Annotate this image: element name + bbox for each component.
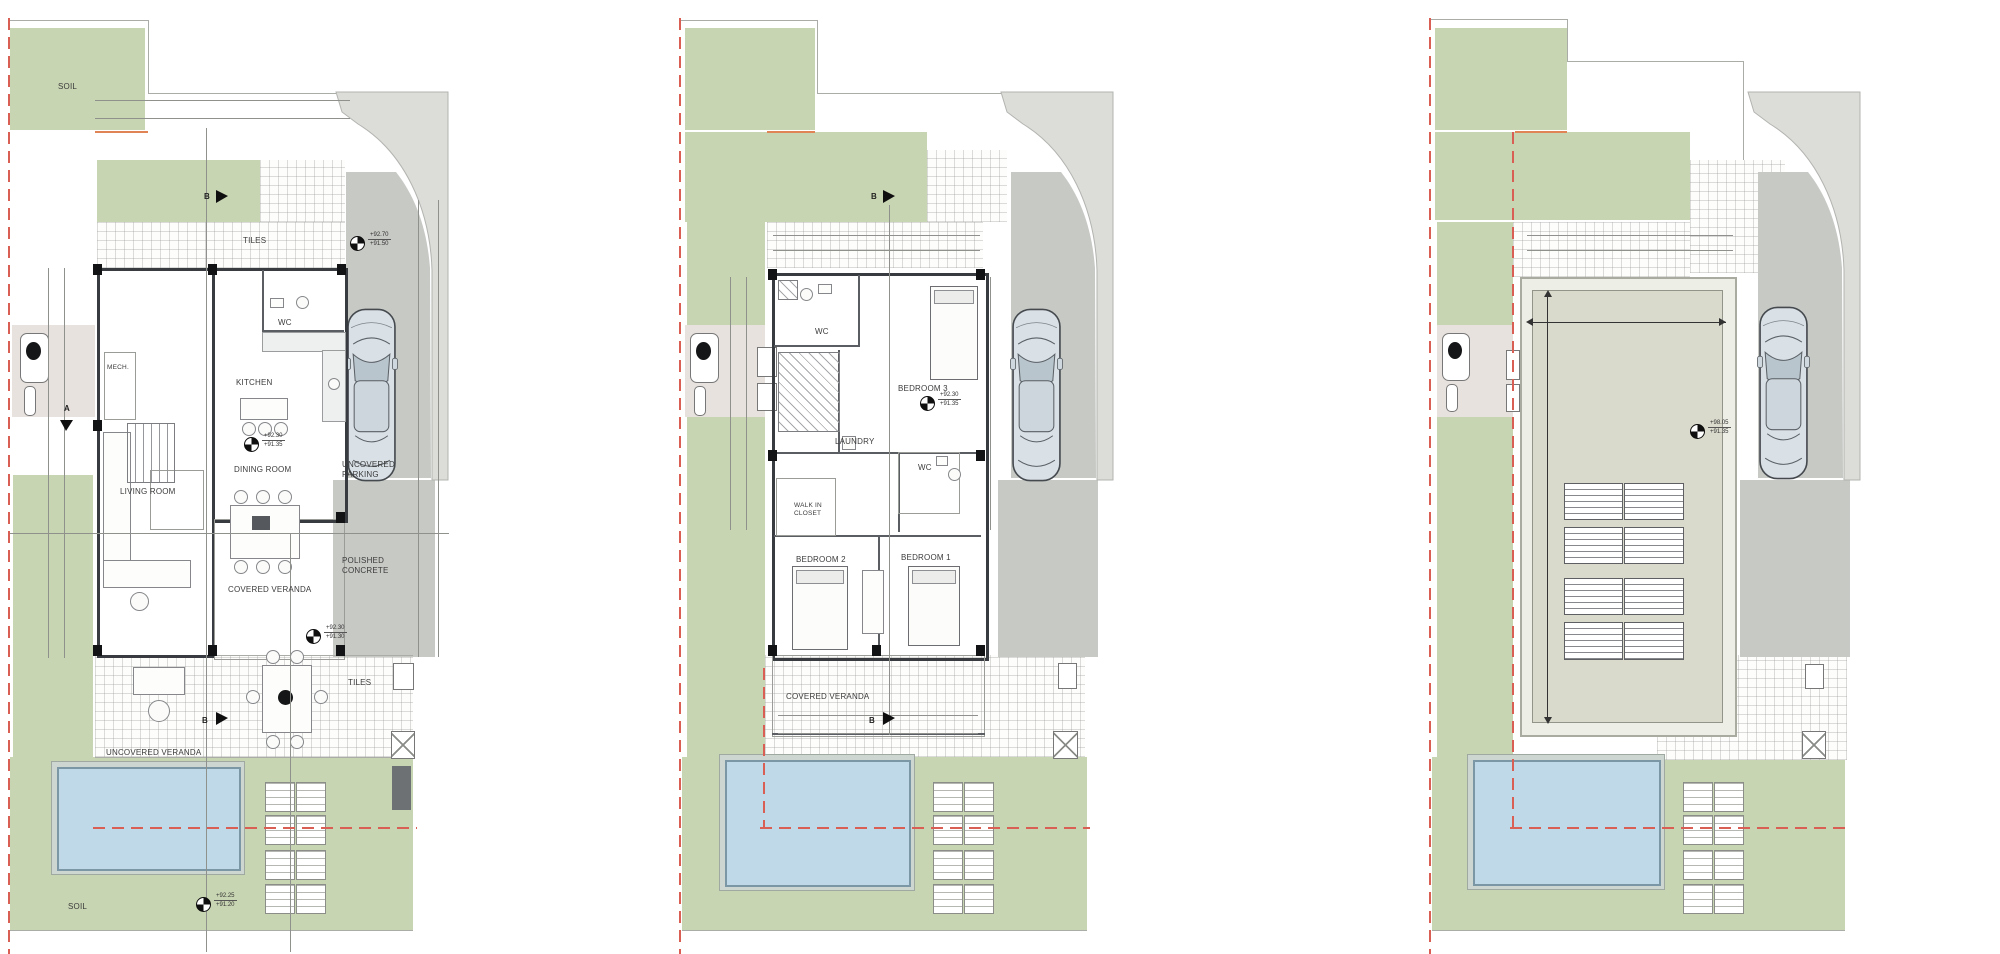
shaft-icon <box>391 731 415 759</box>
column <box>768 269 777 280</box>
plot-outline <box>148 93 352 94</box>
plot-outline <box>148 20 149 93</box>
dim-line <box>48 268 49 658</box>
dim-line <box>730 277 731 530</box>
solar-panel <box>1624 622 1684 660</box>
utility-box-icon <box>1805 664 1824 689</box>
section-line <box>889 205 890 735</box>
label-tiles-upper: TILES <box>243 236 266 246</box>
chair <box>256 490 270 504</box>
setback-dashed <box>93 827 417 829</box>
chair <box>314 690 328 704</box>
section-arrow-icon <box>60 420 73 431</box>
mech-unit-fan-icon <box>26 342 41 360</box>
paved-area <box>998 480 1098 657</box>
solar-panel <box>1624 527 1684 564</box>
plot-outline <box>682 930 1087 931</box>
setback-dashed-vertical <box>763 668 765 827</box>
table-centerpiece <box>252 516 270 530</box>
level-value: +91.35 <box>1708 428 1731 435</box>
level-value: +98.05 <box>1708 420 1731 428</box>
garden-area <box>97 160 260 222</box>
wc-outline <box>898 452 960 514</box>
column <box>93 645 102 656</box>
dim-line <box>773 250 980 251</box>
label-laundry: LAUNDRY <box>835 437 875 447</box>
garden-area <box>1435 28 1567 130</box>
kitchen-counter <box>262 332 346 352</box>
column <box>93 264 102 275</box>
staircase <box>127 423 175 483</box>
shower-icon <box>778 280 798 300</box>
setback-dashed <box>760 827 1090 829</box>
mech-unit-fan-icon <box>696 342 711 360</box>
level-marker: +92.70+91.50 <box>350 232 391 251</box>
column <box>768 450 777 461</box>
chair <box>290 650 304 664</box>
mech-pill-icon <box>1446 384 1458 412</box>
armchair <box>130 592 149 611</box>
pillow <box>934 290 974 304</box>
level-value: +92.30 <box>262 433 285 441</box>
outdoor-sofa <box>133 667 185 695</box>
dim-arrowhead <box>1544 290 1552 297</box>
toilet-icon <box>296 296 309 309</box>
dim-line <box>773 235 980 236</box>
chair <box>266 650 280 664</box>
level-marker: +92.30+91.30 <box>306 625 347 644</box>
solar-panel <box>1564 622 1623 660</box>
dim-line <box>438 200 439 657</box>
utility-box-icon <box>1058 663 1077 689</box>
sun-lounger <box>1714 884 1744 914</box>
level-marker-icon <box>306 629 321 644</box>
label-soil-top: SOIL <box>58 82 77 92</box>
plot-outline <box>1432 930 1845 931</box>
sun-lounger <box>1683 815 1713 845</box>
section-arrow-icon <box>883 190 895 203</box>
garden-area <box>685 28 815 130</box>
label-bedroom1: BEDROOM 1 <box>901 553 951 563</box>
plot-outline <box>10 930 413 931</box>
sofa <box>103 560 191 588</box>
chair <box>234 560 248 574</box>
washbasin-icon <box>936 456 948 466</box>
dim-line <box>746 277 747 530</box>
utility-block <box>392 766 411 810</box>
mech-closet <box>104 352 136 420</box>
pillow <box>912 570 956 584</box>
garden-area <box>13 475 93 757</box>
sun-lounger <box>1683 884 1713 914</box>
tiled-area <box>927 150 1007 222</box>
label-living-room: LIVING ROOM <box>120 487 176 497</box>
level-value: +91.30 <box>324 633 347 640</box>
solar-panel <box>1564 527 1623 564</box>
plot-outline <box>680 20 817 21</box>
chair <box>278 490 292 504</box>
column <box>976 269 985 280</box>
shaft-icon <box>1802 731 1826 759</box>
sun-lounger <box>1714 815 1744 845</box>
sun-lounger <box>1683 782 1713 812</box>
sun-lounger <box>296 884 326 914</box>
sun-lounger <box>1714 782 1744 812</box>
column <box>976 450 985 461</box>
sun-lounger <box>1683 850 1713 880</box>
plot-outline <box>1743 61 1744 160</box>
level-value: +92.25 <box>214 893 237 901</box>
kitchen-island <box>240 398 288 420</box>
level-marker: +92.30+91.35 <box>920 392 961 411</box>
sun-lounger <box>296 815 326 845</box>
level-marker: +92.25+91.20 <box>196 893 237 912</box>
dim-line <box>778 733 978 734</box>
washbasin-icon <box>818 284 832 294</box>
column <box>768 645 777 656</box>
sun-lounger <box>1714 850 1744 880</box>
label-wc-mid: WC <box>918 463 932 473</box>
section-label-b: B <box>204 192 210 201</box>
washbasin-icon <box>270 298 284 308</box>
label-dining-room: DINING ROOM <box>234 465 291 475</box>
solar-panel <box>1624 578 1684 615</box>
dim-line <box>1527 250 1733 251</box>
dim-line <box>1527 235 1733 236</box>
chair <box>234 490 248 504</box>
label-covered-veranda: COVERED VERANDA <box>228 585 311 595</box>
chair <box>256 560 270 574</box>
label-soil-bottom: SOIL <box>68 902 87 912</box>
grid-line <box>9 533 449 534</box>
garden-area <box>687 222 765 757</box>
label-wc: WC <box>278 318 292 328</box>
level-value: +91.35 <box>938 400 961 407</box>
plot-outline <box>817 20 818 93</box>
level-marker-icon <box>350 236 365 251</box>
setback-dashed-vertical <box>1512 132 1514 827</box>
sun-lounger <box>964 884 994 914</box>
partition-wall <box>858 275 860 347</box>
sun-lounger <box>964 850 994 880</box>
desk <box>862 570 884 634</box>
plot-boundary-dashed <box>1429 18 1431 954</box>
sun-lounger <box>296 782 326 812</box>
plot-outline <box>1567 61 1743 62</box>
tiled-area <box>260 160 345 222</box>
dim-arrowhead <box>1544 717 1552 724</box>
label-tiles-lower: TILES <box>348 678 371 688</box>
column <box>93 420 102 431</box>
sun-lounger <box>933 850 963 880</box>
chair <box>246 690 260 704</box>
label-polished-concrete: POLISHED CONCRETE <box>342 556 389 576</box>
setback-corner-line <box>1515 131 1567 133</box>
solar-panel <box>1564 483 1623 520</box>
section-line <box>290 533 291 952</box>
chair <box>266 735 280 749</box>
roof-dim-line-vertical <box>1547 292 1548 722</box>
level-marker-icon <box>1690 424 1705 439</box>
section-label-b: B <box>871 192 877 201</box>
section-arrow-icon <box>883 712 895 725</box>
level-value: +91.20 <box>214 901 237 908</box>
level-marker-icon <box>244 437 259 452</box>
level-marker: +98.05+91.35 <box>1690 420 1731 439</box>
level-marker-icon <box>920 396 935 411</box>
sun-lounger <box>933 782 963 812</box>
dim-line <box>778 715 978 716</box>
tiled-area <box>97 222 345 268</box>
toilet-icon <box>948 468 961 481</box>
garden-area <box>10 28 145 130</box>
setback-dashed <box>1510 827 1850 829</box>
section-arrow-icon <box>216 712 228 725</box>
sun-lounger <box>933 815 963 845</box>
label-kitchen: KITCHEN <box>236 378 273 388</box>
partition-wall <box>262 270 264 330</box>
solar-panel <box>1624 483 1684 520</box>
sun-lounger <box>933 884 963 914</box>
label-uncovered-parking: UNCOVERED PARKING <box>342 460 395 480</box>
roof-dim-line <box>1528 322 1726 323</box>
label-bedroom2: BEDROOM 2 <box>796 555 846 565</box>
level-value: +92.70 <box>368 232 391 240</box>
outdoor-chair <box>148 700 170 722</box>
swimming-pool <box>1473 760 1661 886</box>
section-label-b: B <box>202 716 208 725</box>
swimming-pool <box>725 760 911 887</box>
pillow <box>796 570 844 584</box>
label-walk-in-closet: WALK IN CLOSET <box>794 502 822 518</box>
label-uncovered-veranda: UNCOVERED VERANDA <box>106 748 201 758</box>
tiled-area <box>767 222 983 268</box>
partition-wall <box>774 345 860 347</box>
dim-line <box>95 118 350 119</box>
shaft-icon <box>1053 731 1078 759</box>
sun-lounger <box>296 850 326 880</box>
column <box>336 512 345 523</box>
plot-boundary-dashed <box>8 18 10 954</box>
car-icon <box>346 309 398 480</box>
garden-area <box>1435 132 1690 220</box>
column <box>976 645 985 656</box>
level-value: +92.30 <box>938 392 961 400</box>
column <box>872 645 881 656</box>
level-value: +91.35 <box>262 441 285 448</box>
toilet-icon <box>800 288 813 301</box>
dim-line <box>418 200 419 657</box>
section-label-a: A <box>64 404 70 413</box>
column <box>337 264 346 275</box>
setback-corner-line <box>95 131 148 133</box>
level-marker-icon <box>196 897 211 912</box>
dim-arrowhead <box>1526 318 1533 326</box>
sun-lounger <box>964 782 994 812</box>
setback-corner-line <box>767 131 815 133</box>
sink-icon <box>328 378 340 390</box>
plot-outline <box>1430 19 1567 20</box>
plot-boundary-dashed <box>679 18 681 954</box>
solar-panel <box>1564 578 1623 615</box>
car-icon <box>1758 307 1810 478</box>
plot-outline <box>817 93 1023 94</box>
mech-pill-icon <box>694 386 706 416</box>
garden-area <box>1437 222 1513 757</box>
label-mech: MECH. <box>107 364 129 372</box>
plot-outline <box>9 20 148 21</box>
mech-pill-icon <box>24 386 36 416</box>
column <box>208 645 217 656</box>
chair <box>290 735 304 749</box>
dim-line <box>64 268 65 658</box>
label-wc-top: WC <box>815 327 829 337</box>
garden-area <box>685 132 927 222</box>
car-icon <box>1011 309 1063 480</box>
swimming-pool <box>57 767 241 871</box>
dim-line <box>990 277 991 530</box>
level-marker: +92.30+91.35 <box>244 433 285 452</box>
section-label-b: B <box>869 716 875 725</box>
section-arrow-icon <box>216 190 228 203</box>
column <box>208 264 217 275</box>
drawing-sheet: SOIL TILES WC MECH. KITCHEN DINING ROOM … <box>0 0 2000 954</box>
level-value: +92.30 <box>324 625 347 633</box>
level-value: +91.50 <box>368 240 391 247</box>
sun-lounger <box>964 815 994 845</box>
tiled-area <box>1690 160 1785 273</box>
dim-line <box>95 100 350 101</box>
plot-outline <box>1567 19 1568 61</box>
paved-area <box>1740 480 1850 657</box>
column <box>336 645 345 656</box>
staircase <box>778 352 840 432</box>
label-covered-veranda: COVERED VERANDA <box>786 692 869 702</box>
mech-unit-fan-icon <box>1448 342 1462 359</box>
utility-box-icon <box>393 663 414 690</box>
dim-arrowhead <box>1719 318 1726 326</box>
